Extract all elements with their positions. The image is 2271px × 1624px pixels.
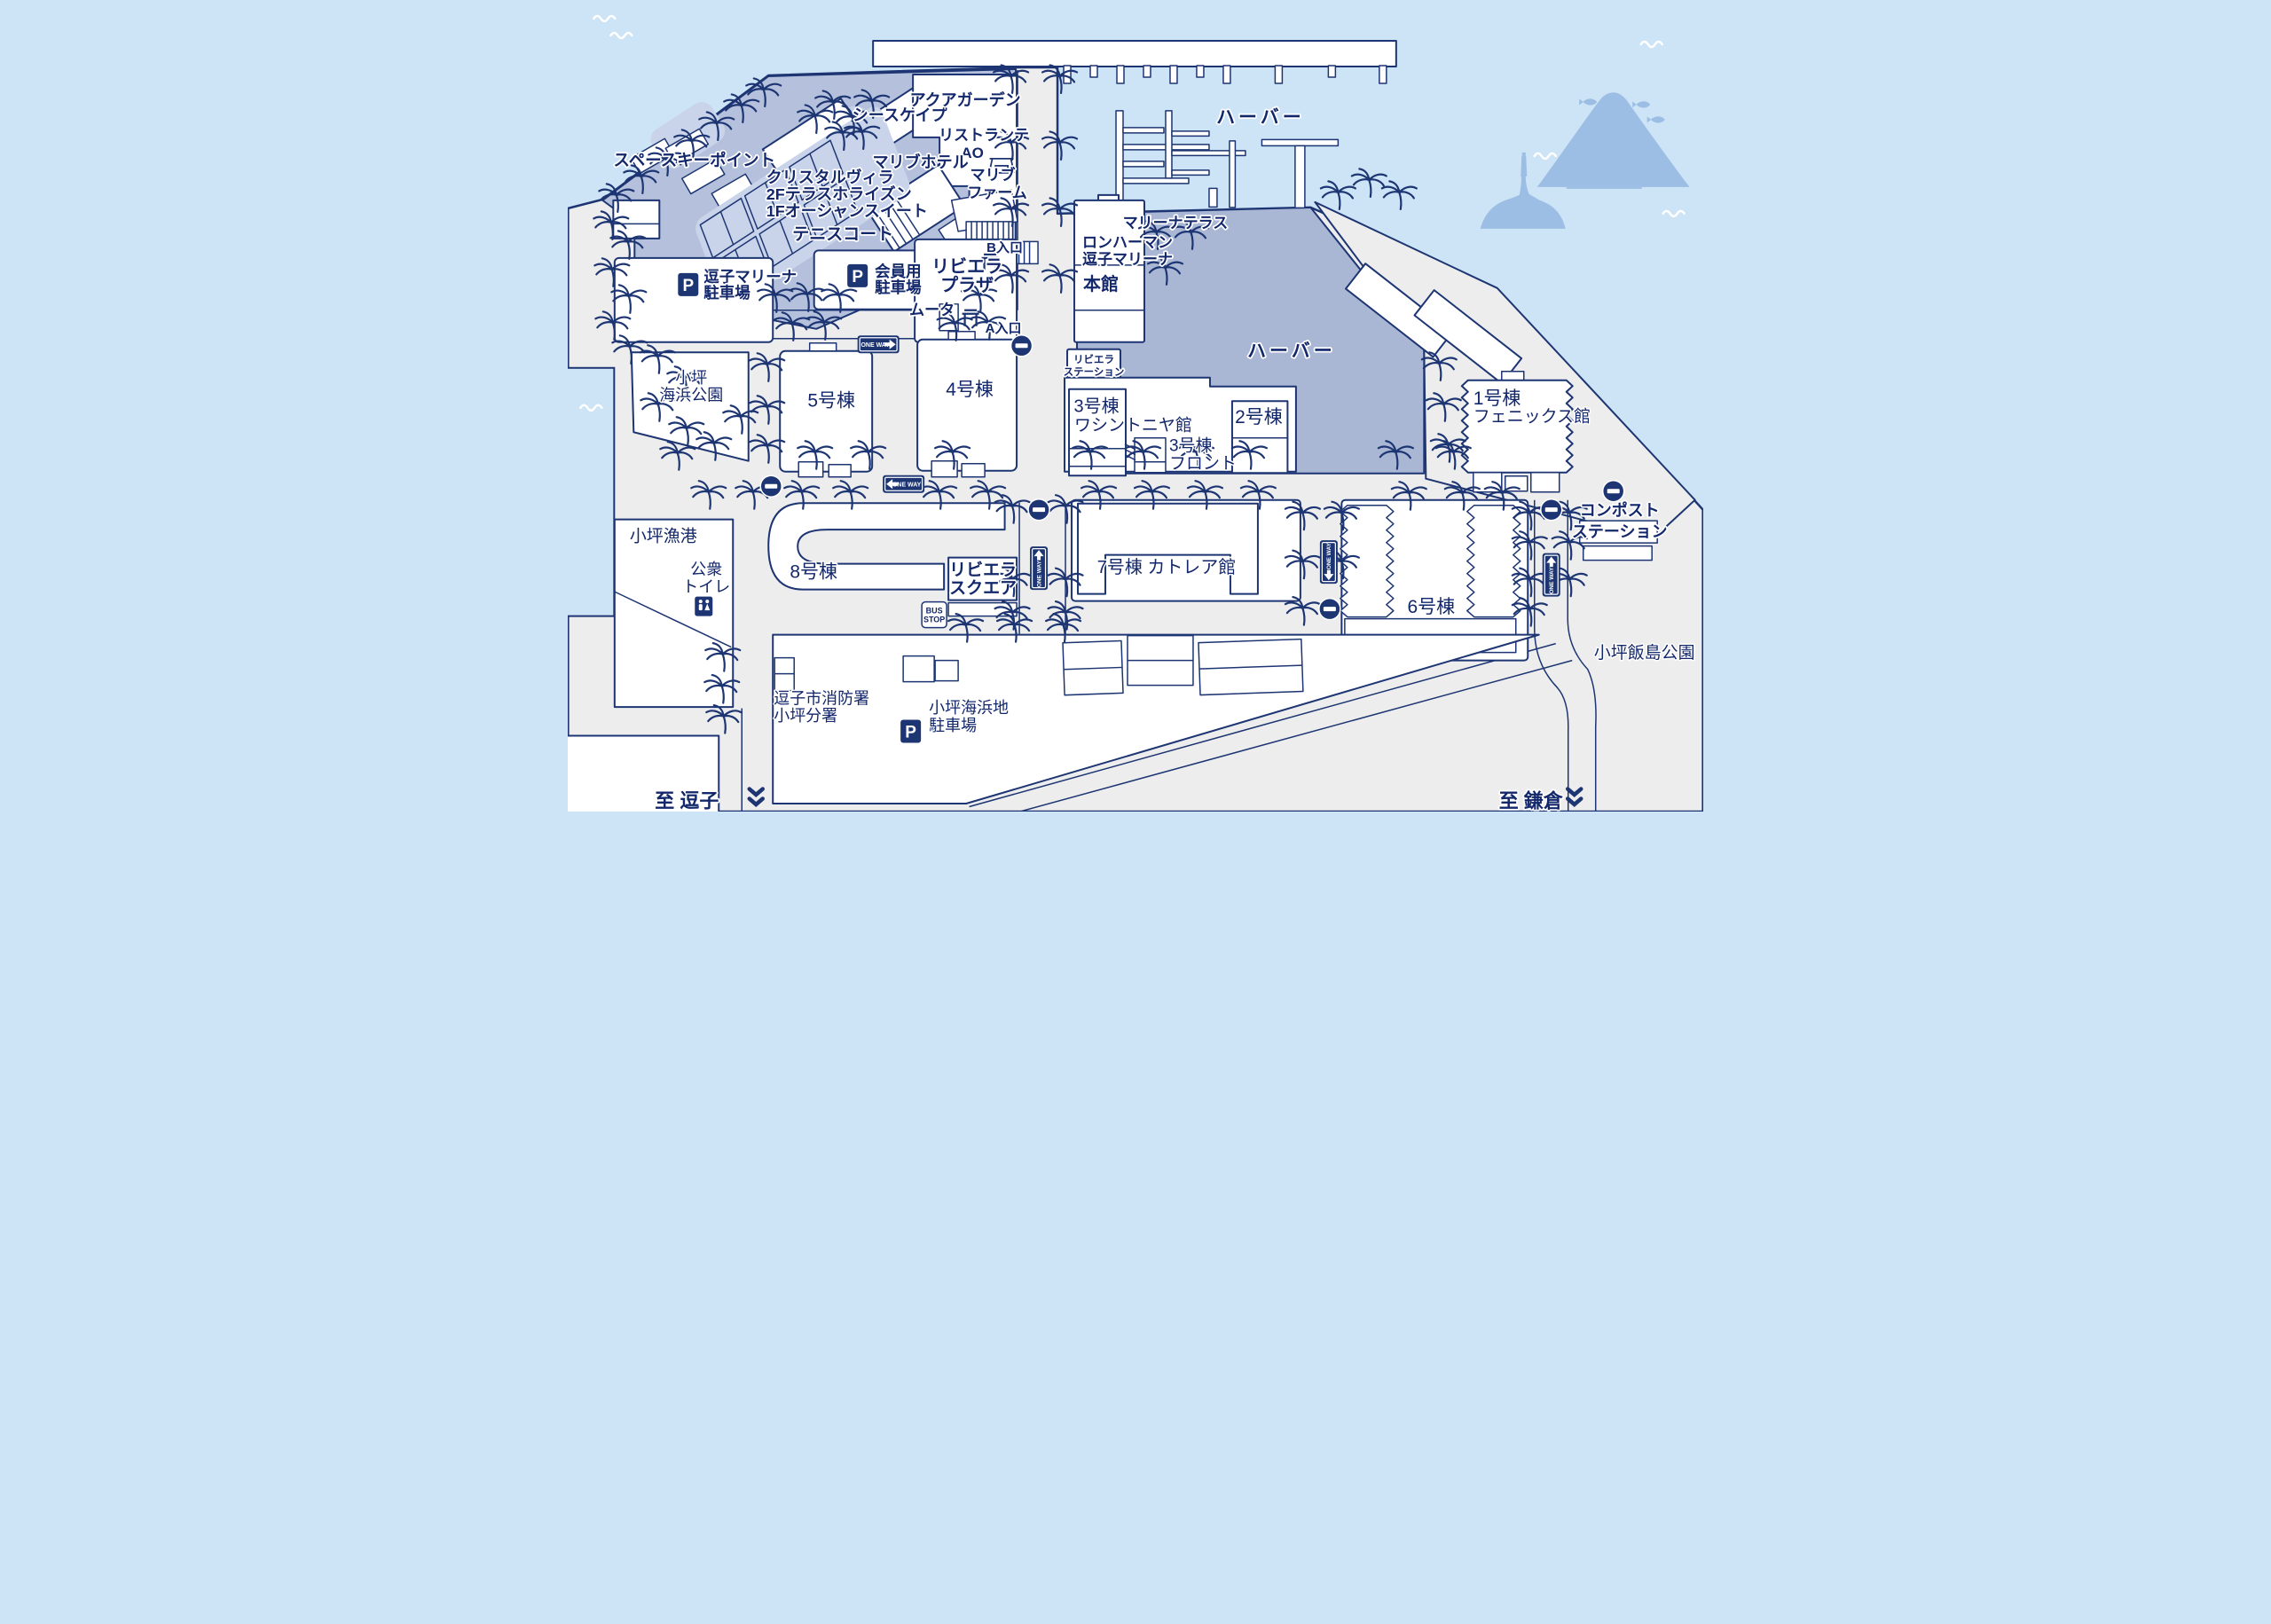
label-building-8: 8号棟 [790,562,837,583]
label-malibu-farm: マリブ [970,166,1016,184]
label-entrance-b: B入口 [986,240,1023,255]
label-tennis-court: テニスコート [792,225,893,244]
svg-text:P: P [682,277,694,295]
label-fire-station: 小坪分署 [774,707,837,725]
label-fire-station: 逗子市消防署 [774,690,869,708]
one-way-sign-east: ONE WAY [858,335,900,353]
label-riviera-station: ステーション [1064,366,1125,378]
label-building-4: 4号棟 [946,380,994,400]
label-harbor-north: ハーバー [1216,107,1305,128]
parking-icon-member: P [847,264,868,287]
label-member-parking: 駐車場 [875,279,922,296]
svg-text:ONE WAY: ONE WAY [1549,567,1555,594]
label-building-6: 6号棟 [1408,597,1456,617]
svg-text:BUS: BUS [926,607,943,616]
svg-text:ONE WAY: ONE WAY [1036,560,1042,587]
label-space-key-point: スペースキーポイント [614,151,775,169]
label-ron-herman: ロンハーマン [1082,234,1173,251]
label-building-3: ワシントニヤ館 [1074,416,1192,435]
label-riviera-plaza: プラザ [940,275,994,295]
restroom-icon [695,597,712,616]
label-marina-parking: 駐車場 [703,284,750,302]
label-crystal-villa: 1Fオーシャンスイート [766,202,928,220]
no-entry-icon [760,475,782,497]
label-entrance-a: A入口 [986,321,1022,336]
fishing-port-parcel [615,520,733,707]
label-building-7: 7号棟 カトレア館 [1097,557,1236,577]
label-riviera-plaza: リビエラ [931,256,1002,277]
label-building-1: フェニックス館 [1473,407,1591,427]
one-way-sign-north-1: ONE WAY [1030,546,1048,590]
bus-stop-sign: BUS STOP [922,602,947,628]
parking-icon-seaside: P [900,720,921,743]
label-malibu-farm: ファーム [967,184,1026,201]
svg-text:P: P [905,724,916,742]
horizon-line [1567,187,1642,189]
no-entry-icon [1541,499,1562,521]
label-kotsubo-park: 小坪 [675,369,707,387]
label-building-1: 1号棟 [1473,388,1521,409]
label-member-parking: 会員用 [875,263,921,280]
label-riviera-square: スクエア [949,578,1017,598]
label-ron-herman: 逗子マリーナ [1082,251,1173,268]
label-seaside-parking: 小坪海浜地 [929,699,1009,717]
label-harbor-center: ハーバー [1247,341,1336,361]
label-main-building: 本館 [1083,273,1119,294]
fishing-port-water [568,368,614,616]
label-building-3-front: 3号棟 [1169,436,1213,456]
label-building-3-front: フロント [1169,455,1237,474]
label-riviera-square: リビエラ [949,561,1017,580]
no-entry-icon [1028,499,1049,521]
label-aqua-garden: アクアガーデン [910,90,1021,109]
label-ristorante: リストランテ [939,127,1029,144]
label-compost-station: コンポスト [1580,501,1660,520]
label-marina-parking: 逗子マリーナ [703,268,797,286]
no-entry-icon [1011,335,1033,357]
label-to-zushi: 至 逗子 [655,790,719,812]
label-muta: ムータ [909,302,955,318]
fire-station-building [774,658,794,691]
no-entry-icon [1603,481,1624,502]
svg-text:ONE WAY: ONE WAY [1326,542,1332,569]
label-public-toilet: トイレ [682,578,730,596]
label-seaside-parking: 駐車場 [929,717,977,734]
building-4 [917,332,1017,477]
label-building-5: 5号棟 [807,391,855,412]
svg-text:P: P [852,268,863,286]
parking-icon-marina: P [678,273,698,296]
label-public-toilet: 公衆 [690,561,722,578]
label-kotsubo-park: 海浜公園 [659,386,723,404]
label-to-kamakura: 至 鎌倉 [1499,790,1564,812]
svg-text:STOP: STOP [923,616,945,624]
label-iijima-park: 小坪飯島公園 [1594,643,1695,663]
label-building-3: 3号棟 [1074,396,1120,417]
one-way-sign-north-2: ONE WAY [1543,553,1560,597]
one-way-sign-west: ONE WAY [883,475,924,493]
label-building-2: 2号棟 [1235,407,1283,428]
label-fishing-port: 小坪漁港 [630,527,697,546]
label-marina-terrace: マリーナテラス [1123,215,1229,231]
marina-map: P P P ONE WAY ONE WAY ONE WAY ONE WAY [568,0,1703,812]
no-entry-icon [1319,599,1340,620]
building-7 [1072,500,1301,601]
label-crystal-villa: 2Fテラスホライズン [766,184,912,203]
one-way-sign-south: ONE WAY [1320,540,1338,584]
label-compost-station: ステーション [1572,523,1668,541]
label-malibu-hotel: マリブホテル [873,153,969,171]
label-riviera-station: リビエラ [1073,353,1114,365]
